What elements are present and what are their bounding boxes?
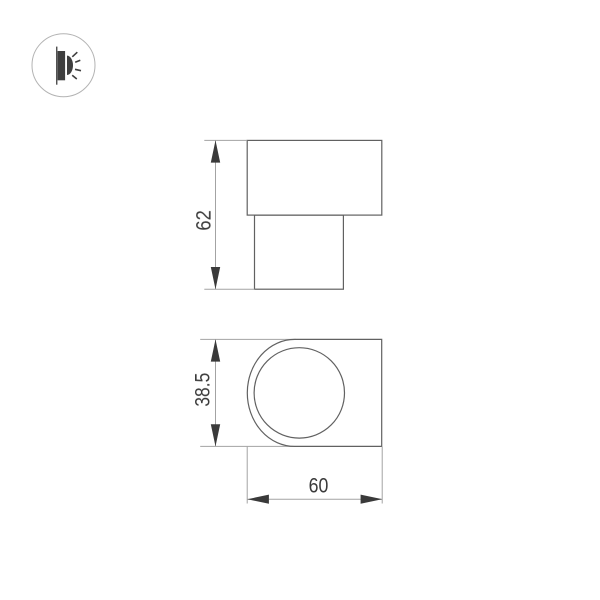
svg-text:38.5: 38.5	[191, 373, 215, 407]
svg-text:62: 62	[192, 210, 216, 231]
svg-text:60: 60	[309, 473, 329, 497]
